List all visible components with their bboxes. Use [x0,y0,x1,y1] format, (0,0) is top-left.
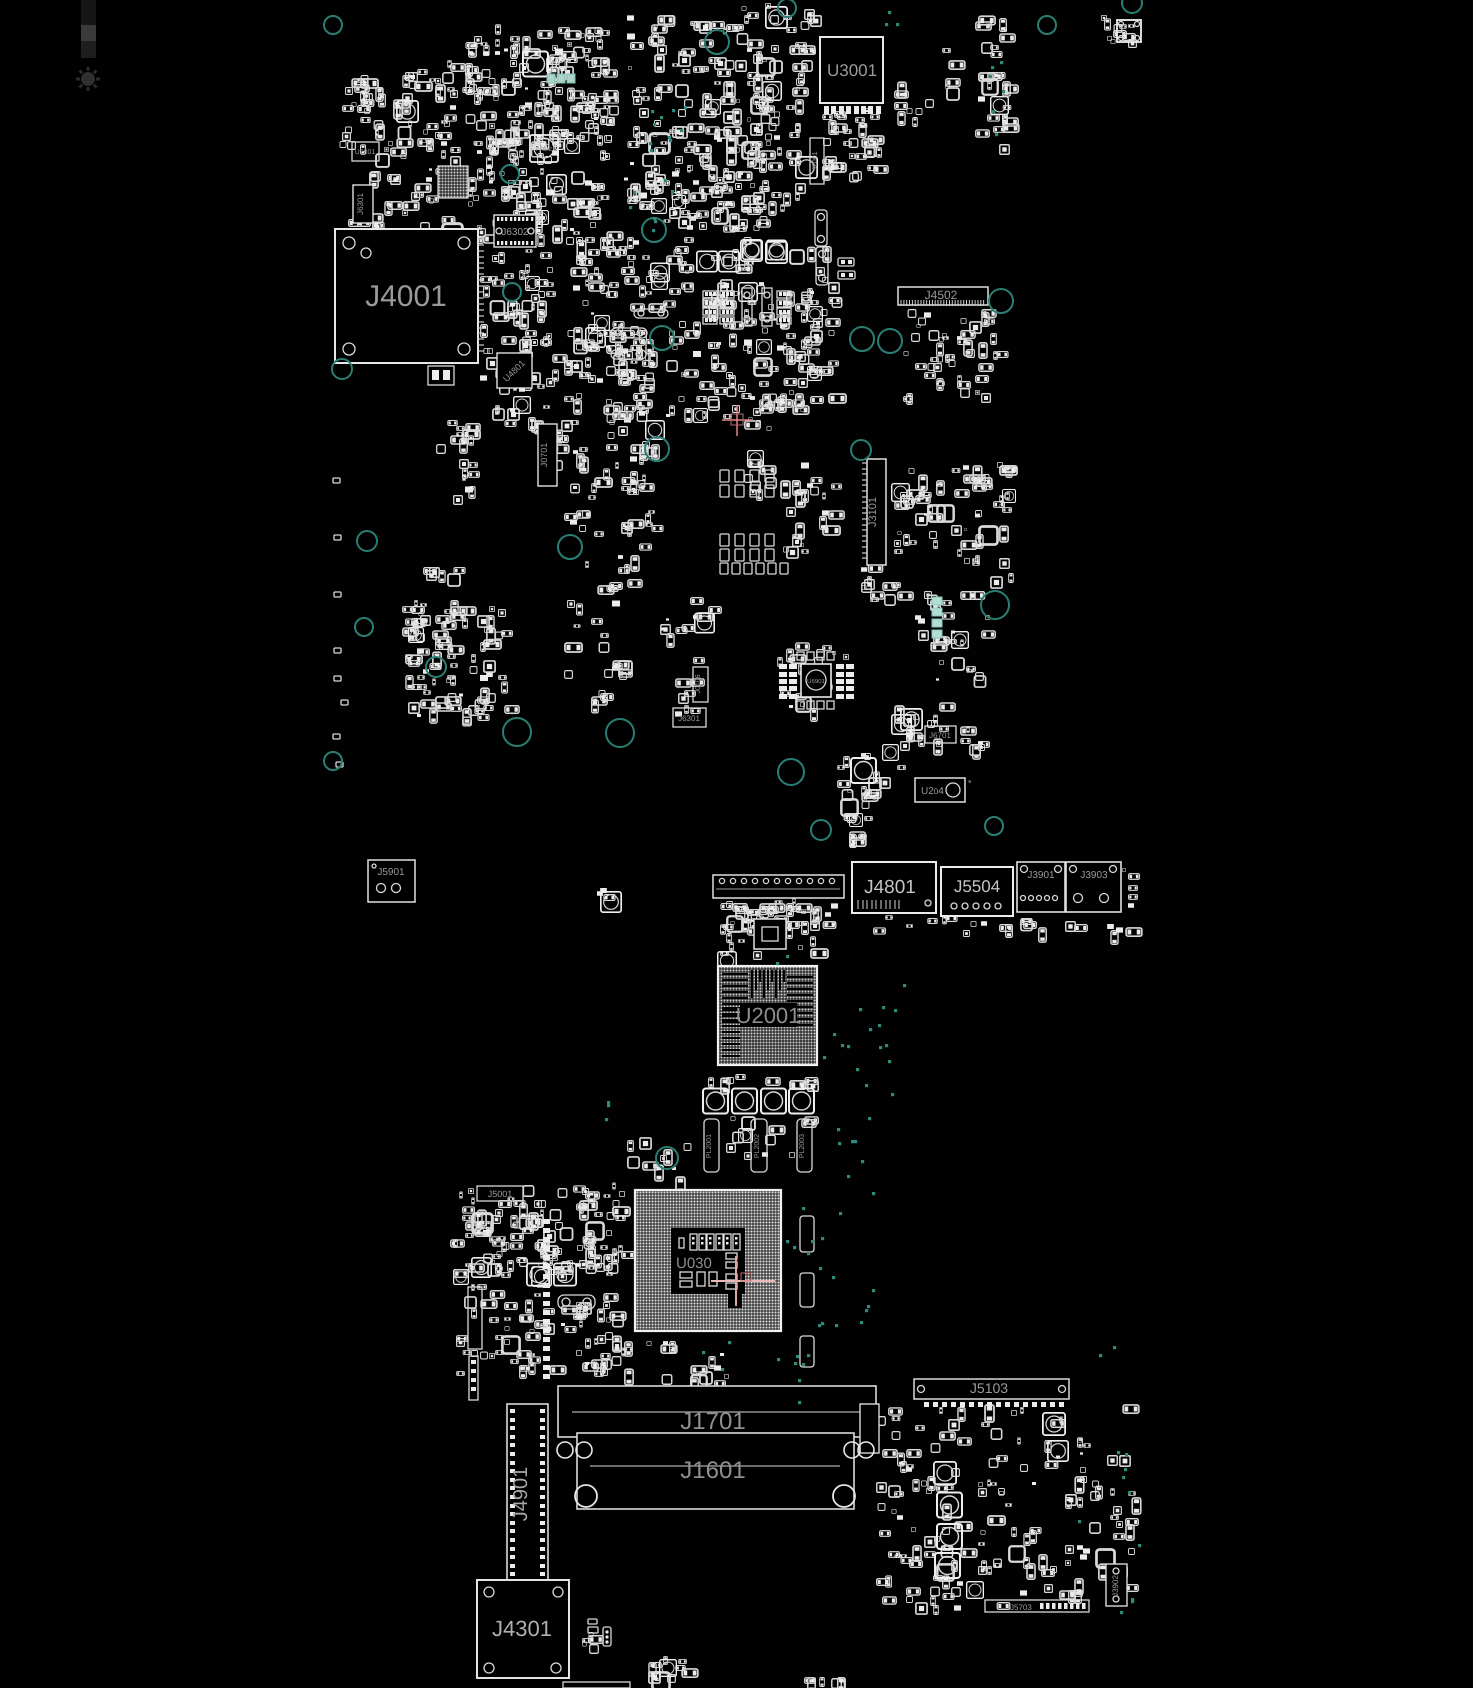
svg-text:J3901: J3901 [1027,870,1055,881]
svg-text:U2001: U2001 [736,1003,801,1028]
svg-text:J4901: J4901 [510,1467,532,1522]
svg-text:U204: U204 [921,786,944,797]
svg-text:PL2002: PL2002 [754,1134,761,1158]
svg-text:PL2001: PL2001 [706,1134,713,1158]
svg-text:U030: U030 [676,1255,712,1272]
svg-text:U3001: U3001 [827,61,877,80]
svg-text:J4001: J4001 [365,280,447,313]
svg-text:J5103: J5103 [970,1380,1008,1396]
svg-text:J5001: J5001 [488,1189,513,1199]
svg-text:U2801: U2801 [355,149,376,156]
svg-text:*: * [968,778,972,788]
svg-text:J1701: J1701 [680,1408,745,1435]
svg-text:J4301: J4301 [492,1616,552,1641]
svg-text:J2001: J2001 [812,151,819,170]
svg-text:J0106: J0106 [695,674,702,693]
svg-text:J3902: J3902 [1111,1575,1120,1597]
svg-text:J3903: J3903 [1080,870,1108,881]
svg-text:J0701: J0701 [539,443,549,468]
svg-text:J4801: J4801 [864,877,916,898]
svg-text:J6301: J6301 [678,714,700,723]
svg-text:J1601: J1601 [680,1457,745,1484]
svg-text:J6301: J6301 [356,193,365,215]
svg-text:J6701: J6701 [929,731,951,740]
svg-text:J5703: J5703 [1010,1603,1032,1612]
svg-text:J4502: J4502 [925,288,958,302]
svg-text:J5901: J5901 [377,867,405,878]
svg-text:PL2003: PL2003 [799,1134,806,1158]
svg-text:J5504: J5504 [954,877,1000,896]
svg-text:PRDE: PRDE [536,146,553,153]
svg-text:J6302: J6302 [501,227,529,238]
svg-text:U6901: U6901 [807,678,825,685]
svg-text:J3101: J3101 [867,497,879,527]
